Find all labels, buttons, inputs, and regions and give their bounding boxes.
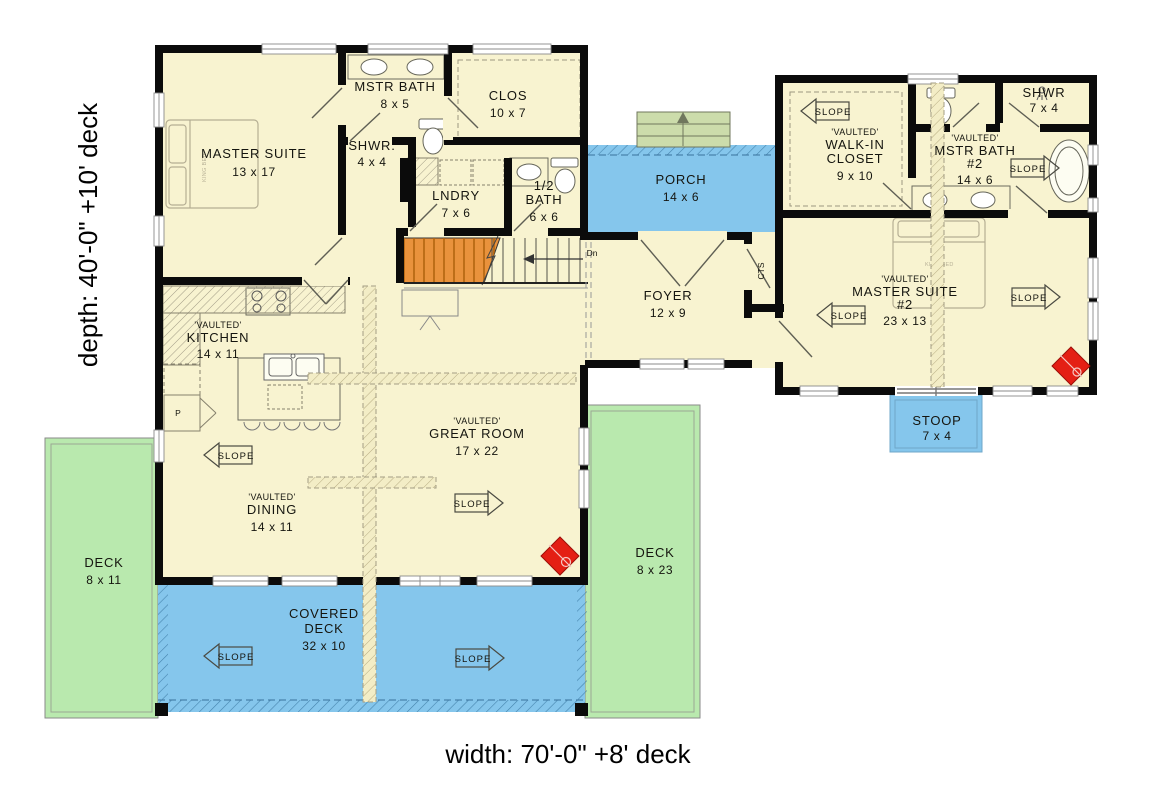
label-kitchen: KITCHEN (187, 330, 250, 345)
label-stoop: STOOP (912, 413, 961, 428)
porch-steps (637, 112, 730, 147)
svg-text:SLOPE: SLOPE (218, 451, 255, 462)
svg-text:SLOPE: SLOPE (1010, 164, 1047, 175)
svg-text:SLOPE: SLOPE (218, 652, 255, 663)
svg-text:DECK: DECK (304, 621, 343, 636)
svg-text:7 x 6: 7 x 6 (441, 206, 470, 220)
svg-text:CLOSET: CLOSET (827, 151, 884, 166)
svg-text:14 x 6: 14 x 6 (957, 173, 993, 187)
svg-text:10 x 7: 10 x 7 (490, 106, 526, 120)
svg-text:32 x 10: 32 x 10 (302, 639, 346, 653)
toilet (555, 169, 575, 193)
svg-text:#2: #2 (967, 156, 983, 171)
label-master-suite: MASTER SUITE (201, 146, 307, 161)
label-pantry: P (175, 408, 181, 418)
label-mstr-bath: MSTR BATH (354, 79, 435, 94)
svg-text:6 x 6: 6 x 6 (529, 210, 558, 224)
svg-text:23 x 13: 23 x 13 (883, 314, 927, 328)
svg-text:'VAULTED': 'VAULTED' (194, 320, 241, 330)
label-dining: DINING (247, 502, 297, 517)
sink (971, 192, 995, 208)
label-clos: CLOS (489, 88, 528, 103)
deck-right-area (585, 405, 700, 718)
label-lndry: LNDRY (432, 188, 480, 203)
svg-text:8 x 11: 8 x 11 (86, 573, 121, 587)
sink (361, 59, 387, 75)
sink (407, 59, 433, 75)
svg-text:14 x 11: 14 x 11 (197, 347, 240, 361)
svg-text:14 x 6: 14 x 6 (663, 190, 699, 204)
svg-text:14 x 11: 14 x 11 (251, 520, 294, 534)
label-walk-in-closet: WALK-IN (825, 137, 884, 152)
floor-plan-drawing: KING BED KING BED (0, 0, 1162, 800)
svg-text:SLOPE: SLOPE (454, 499, 491, 510)
label-porch: PORCH (656, 172, 707, 187)
svg-text:4 x 4: 4 x 4 (357, 155, 386, 169)
porch-area (588, 145, 775, 232)
svg-text:7 x 4: 7 x 4 (1029, 101, 1058, 115)
svg-text:8 x 23: 8 x 23 (637, 563, 673, 577)
width-dimension-label: width: 70'-0" +8' deck (444, 739, 691, 769)
svg-text:SLOPE: SLOPE (831, 311, 868, 322)
label-shwr: SHWR. (348, 138, 395, 153)
deck-post (155, 703, 168, 716)
svg-text:17 x 22: 17 x 22 (455, 444, 499, 458)
deck-post (575, 703, 588, 716)
label-cts-closet: CTS (756, 262, 766, 279)
floor-plan-page: KING BED KING BED (0, 0, 1162, 800)
label-great-room: GREAT ROOM (429, 426, 525, 441)
svg-text:8 x 5: 8 x 5 (380, 97, 409, 111)
svg-text:'VAULTED': 'VAULTED' (453, 416, 500, 426)
svg-text:7 x 4: 7 x 4 (922, 429, 951, 443)
svg-text:9 x 10: 9 x 10 (837, 169, 873, 183)
label-shwr-2: SHWR (1023, 85, 1066, 100)
svg-text:'VAULTED': 'VAULTED' (248, 492, 295, 502)
svg-text:'VAULTED': 'VAULTED' (881, 274, 928, 284)
svg-text:'VAULTED': 'VAULTED' (951, 133, 998, 143)
label-covered-deck: COVERED (289, 606, 359, 621)
svg-text:SLOPE: SLOPE (1011, 293, 1048, 304)
label-half-bath: 1/2 (534, 178, 554, 193)
svg-text:SLOPE: SLOPE (815, 107, 852, 118)
label-deck-right: DECK (635, 545, 674, 560)
toilet-tank (551, 158, 578, 167)
label-stairs-down: Dn (587, 248, 598, 258)
toilet (423, 128, 443, 154)
svg-text:13 x 17: 13 x 17 (232, 165, 276, 179)
label-foyer: FOYER (644, 288, 693, 303)
svg-text:12 x 9: 12 x 9 (650, 306, 686, 320)
label-deck-left: DECK (84, 555, 123, 570)
svg-text:BATH: BATH (526, 192, 563, 207)
depth-dimension-label: depth: 40'-0" +10' deck (73, 102, 103, 367)
svg-text:SLOPE: SLOPE (455, 654, 492, 665)
svg-text:#2: #2 (897, 297, 913, 312)
svg-text:'VAULTED': 'VAULTED' (831, 127, 878, 137)
